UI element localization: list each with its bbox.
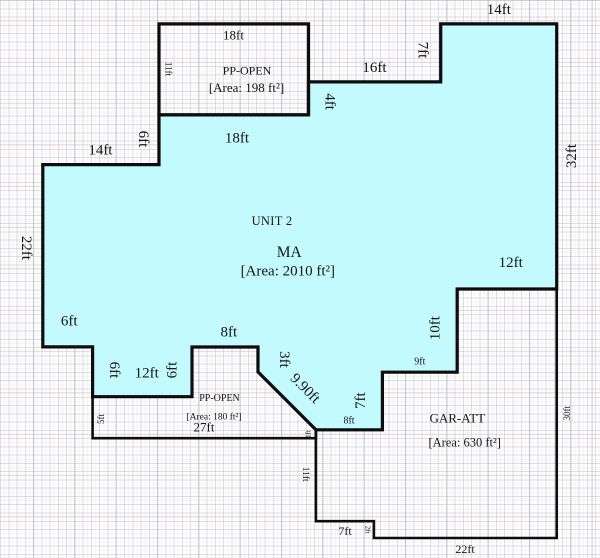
svg-text:9ft: 9ft <box>414 357 425 368</box>
svg-text:GAR-ATT: GAR-ATT <box>429 410 485 425</box>
svg-text:7ft: 7ft <box>415 42 431 59</box>
svg-text:[Area: 2010 ft²]: [Area: 2010 ft²] <box>241 264 335 280</box>
svg-text:8ft: 8ft <box>343 416 354 427</box>
svg-text:[Area: 198 ft²]: [Area: 198 ft²] <box>209 80 284 95</box>
svg-text:11ft: 11ft <box>164 62 174 77</box>
svg-text:4ft: 4ft <box>321 93 337 110</box>
svg-text:6ft: 6ft <box>135 131 151 148</box>
svg-text:MA: MA <box>277 244 303 261</box>
svg-text:30ft: 30ft <box>562 406 572 421</box>
svg-text:8ft: 8ft <box>220 325 237 341</box>
svg-text:14ft: 14ft <box>487 2 512 18</box>
svg-text:16ft: 16ft <box>362 60 387 76</box>
svg-text:PP-OPEN: PP-OPEN <box>223 64 272 78</box>
svg-text:18ft: 18ft <box>223 27 244 42</box>
svg-text:5ft: 5ft <box>96 414 106 424</box>
svg-text:6ft: 6ft <box>165 361 181 378</box>
svg-text:6ft: 6ft <box>106 362 122 379</box>
svg-text:UNIT 2: UNIT 2 <box>252 214 293 228</box>
svg-text:7ft: 7ft <box>353 391 369 408</box>
svg-text:32ft: 32ft <box>564 143 580 168</box>
svg-text:7ft: 7ft <box>338 524 352 538</box>
svg-text:18ft: 18ft <box>225 130 250 146</box>
svg-text:22ft: 22ft <box>18 236 34 261</box>
svg-text:11ft: 11ft <box>300 467 311 482</box>
svg-text:22ft: 22ft <box>455 542 475 556</box>
svg-text:6ft: 6ft <box>61 313 78 329</box>
svg-text:2ft: 2ft <box>364 526 372 534</box>
svg-text:27ft: 27ft <box>194 420 215 435</box>
svg-text:12ft: 12ft <box>135 366 160 382</box>
svg-text:1ft: 1ft <box>305 430 313 438</box>
svg-text:3ft: 3ft <box>276 351 292 368</box>
svg-text:10ft: 10ft <box>428 315 444 340</box>
svg-text:[Area: 630 ft²]: [Area: 630 ft²] <box>428 436 500 450</box>
svg-text:12ft: 12ft <box>499 255 524 271</box>
svg-text:PP-OPEN: PP-OPEN <box>199 393 240 404</box>
svg-text:14ft: 14ft <box>88 143 113 159</box>
